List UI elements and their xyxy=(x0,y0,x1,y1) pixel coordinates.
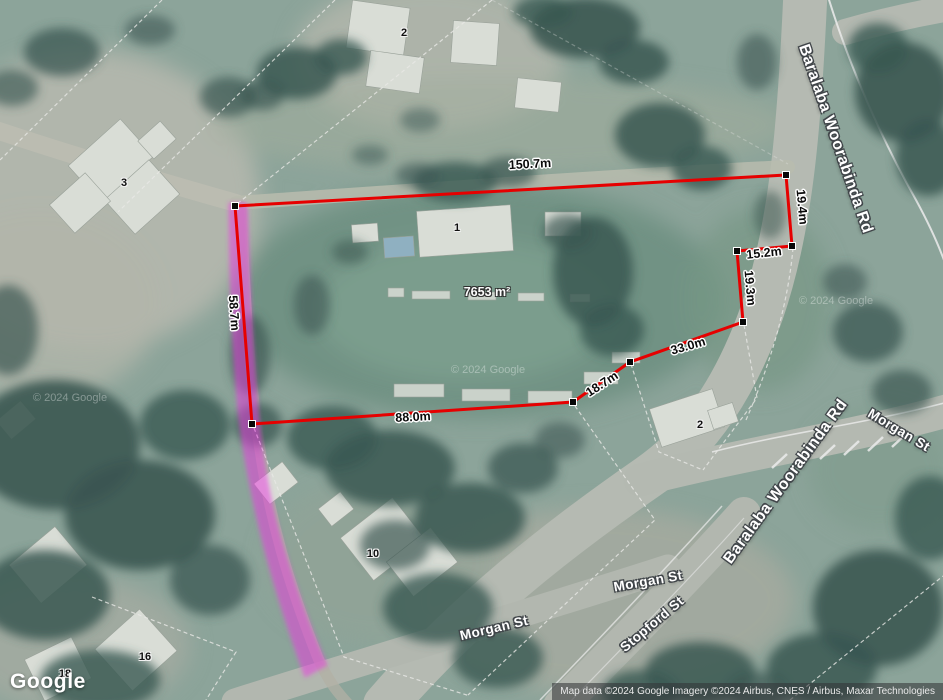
satellite-map-canvas[interactable] xyxy=(0,0,943,700)
vertex-handle[interactable] xyxy=(740,319,747,326)
vertex-handle[interactable] xyxy=(627,359,634,366)
vertex-handle[interactable] xyxy=(734,248,741,255)
vertex-handle[interactable] xyxy=(783,172,790,179)
hall-building xyxy=(417,205,514,257)
vertex-handle[interactable] xyxy=(249,421,256,428)
attribution-text: Map data ©2024 Google Imagery ©2024 Airb… xyxy=(552,683,943,700)
google-logo[interactable]: Google xyxy=(10,670,86,694)
pool xyxy=(383,236,414,258)
map-screenshot: { "map": { "watermark": "© 2024 Google",… xyxy=(0,0,943,700)
vertex-handle[interactable] xyxy=(570,399,577,406)
vertex-handle[interactable] xyxy=(232,203,239,210)
vertex-handle[interactable] xyxy=(789,243,796,250)
